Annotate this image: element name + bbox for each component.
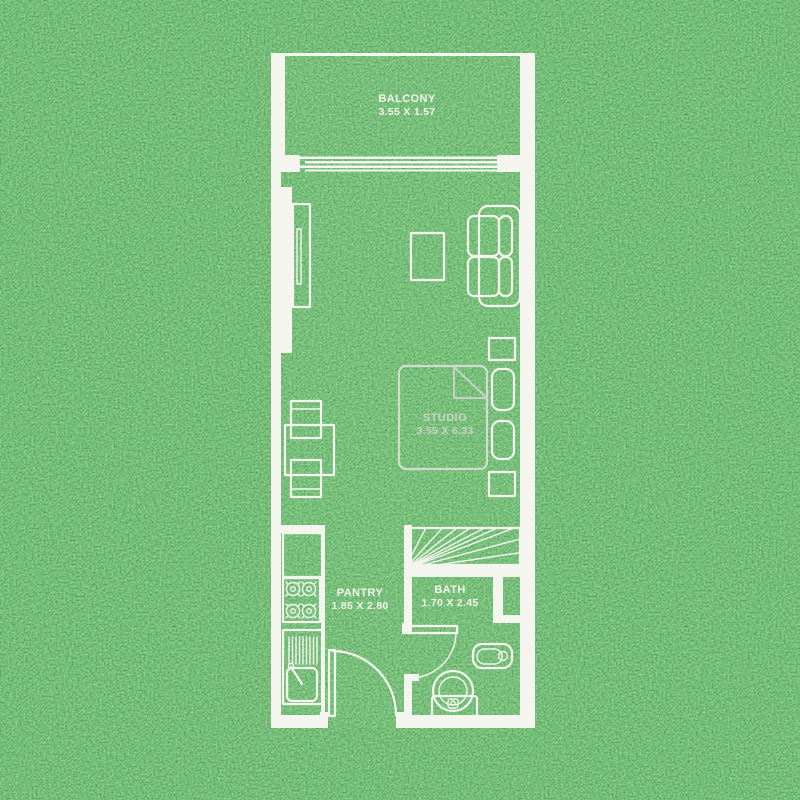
studio-dims: 3.55 X 6.33 xyxy=(416,425,473,437)
floor-plan-canvas: BALCONY 3.55 X 1.57 STUDIO 3.55 X 6.33 P… xyxy=(0,0,800,800)
left-wall-pier xyxy=(281,187,292,353)
shower-bottom-wall xyxy=(404,565,535,577)
right-wall xyxy=(520,53,535,728)
sliding-door-track xyxy=(305,161,498,164)
stove-knob xyxy=(319,587,322,590)
pantry-dims: 1.85 X 2.80 xyxy=(331,600,388,612)
balcony-label: BALCONY xyxy=(378,93,435,105)
sliding-door-track xyxy=(300,157,497,160)
bottom-wall-left xyxy=(271,715,328,728)
pantry-label: PANTRY xyxy=(337,587,384,599)
bath-label: BATH xyxy=(434,584,465,596)
floor-plan: BALCONY 3.55 X 1.57 STUDIO 3.55 X 6.33 P… xyxy=(0,0,800,800)
sliding-door-left-jamb xyxy=(271,155,300,172)
pantry-wall-stub xyxy=(271,525,325,533)
sliding-door-track xyxy=(305,170,498,172)
left-wall xyxy=(271,155,281,728)
sliding-door-track xyxy=(300,166,497,169)
balcony-top-edge xyxy=(271,53,535,56)
stove-knob xyxy=(319,609,322,612)
studio-label: STUDIO xyxy=(423,412,467,424)
sliding-door-right-jamb xyxy=(497,155,535,172)
bath-duct-wall-horizontal xyxy=(493,615,535,623)
bath-dims: 1.70 X 2.45 xyxy=(421,597,478,609)
left-wall-balcony xyxy=(271,53,285,157)
entry-threshold-right xyxy=(396,712,404,728)
entry-threshold-left xyxy=(320,712,328,728)
balcony-dims: 3.55 X 1.57 xyxy=(378,106,435,118)
